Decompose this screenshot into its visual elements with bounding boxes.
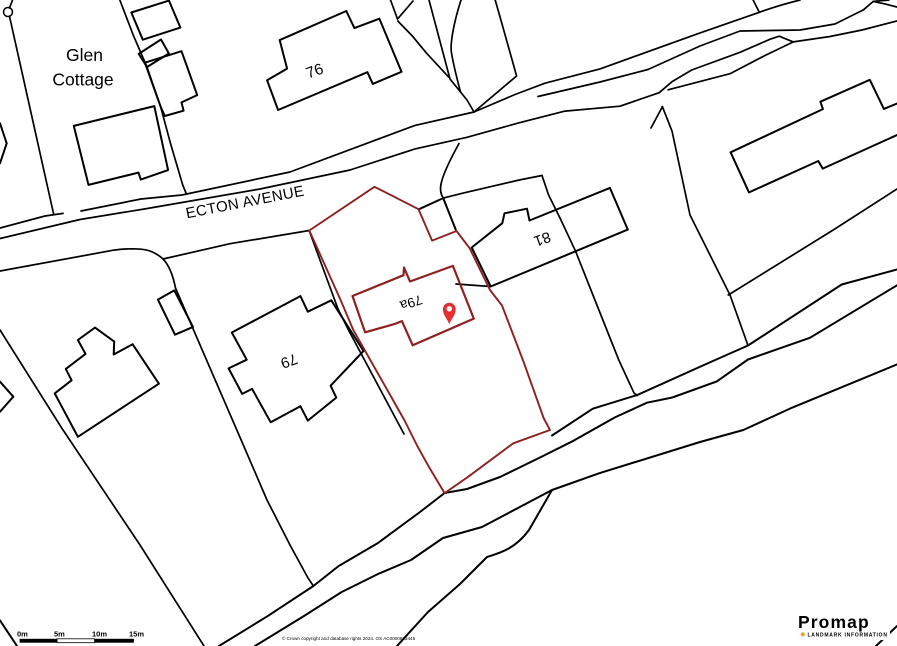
svg-text:10m: 10m <box>92 630 107 639</box>
svg-text:© Crown copyright and database: © Crown copyright and database rights 20… <box>282 635 416 641</box>
svg-text:Cottage: Cottage <box>52 70 113 90</box>
svg-text:Promap: Promap <box>798 612 870 632</box>
svg-text:LANDMARK INFORMATION: LANDMARK INFORMATION <box>808 633 888 639</box>
svg-text:Glen: Glen <box>66 45 103 65</box>
svg-text:0m: 0m <box>17 630 28 639</box>
svg-text:15m: 15m <box>129 630 144 639</box>
svg-text:5m: 5m <box>54 630 65 639</box>
